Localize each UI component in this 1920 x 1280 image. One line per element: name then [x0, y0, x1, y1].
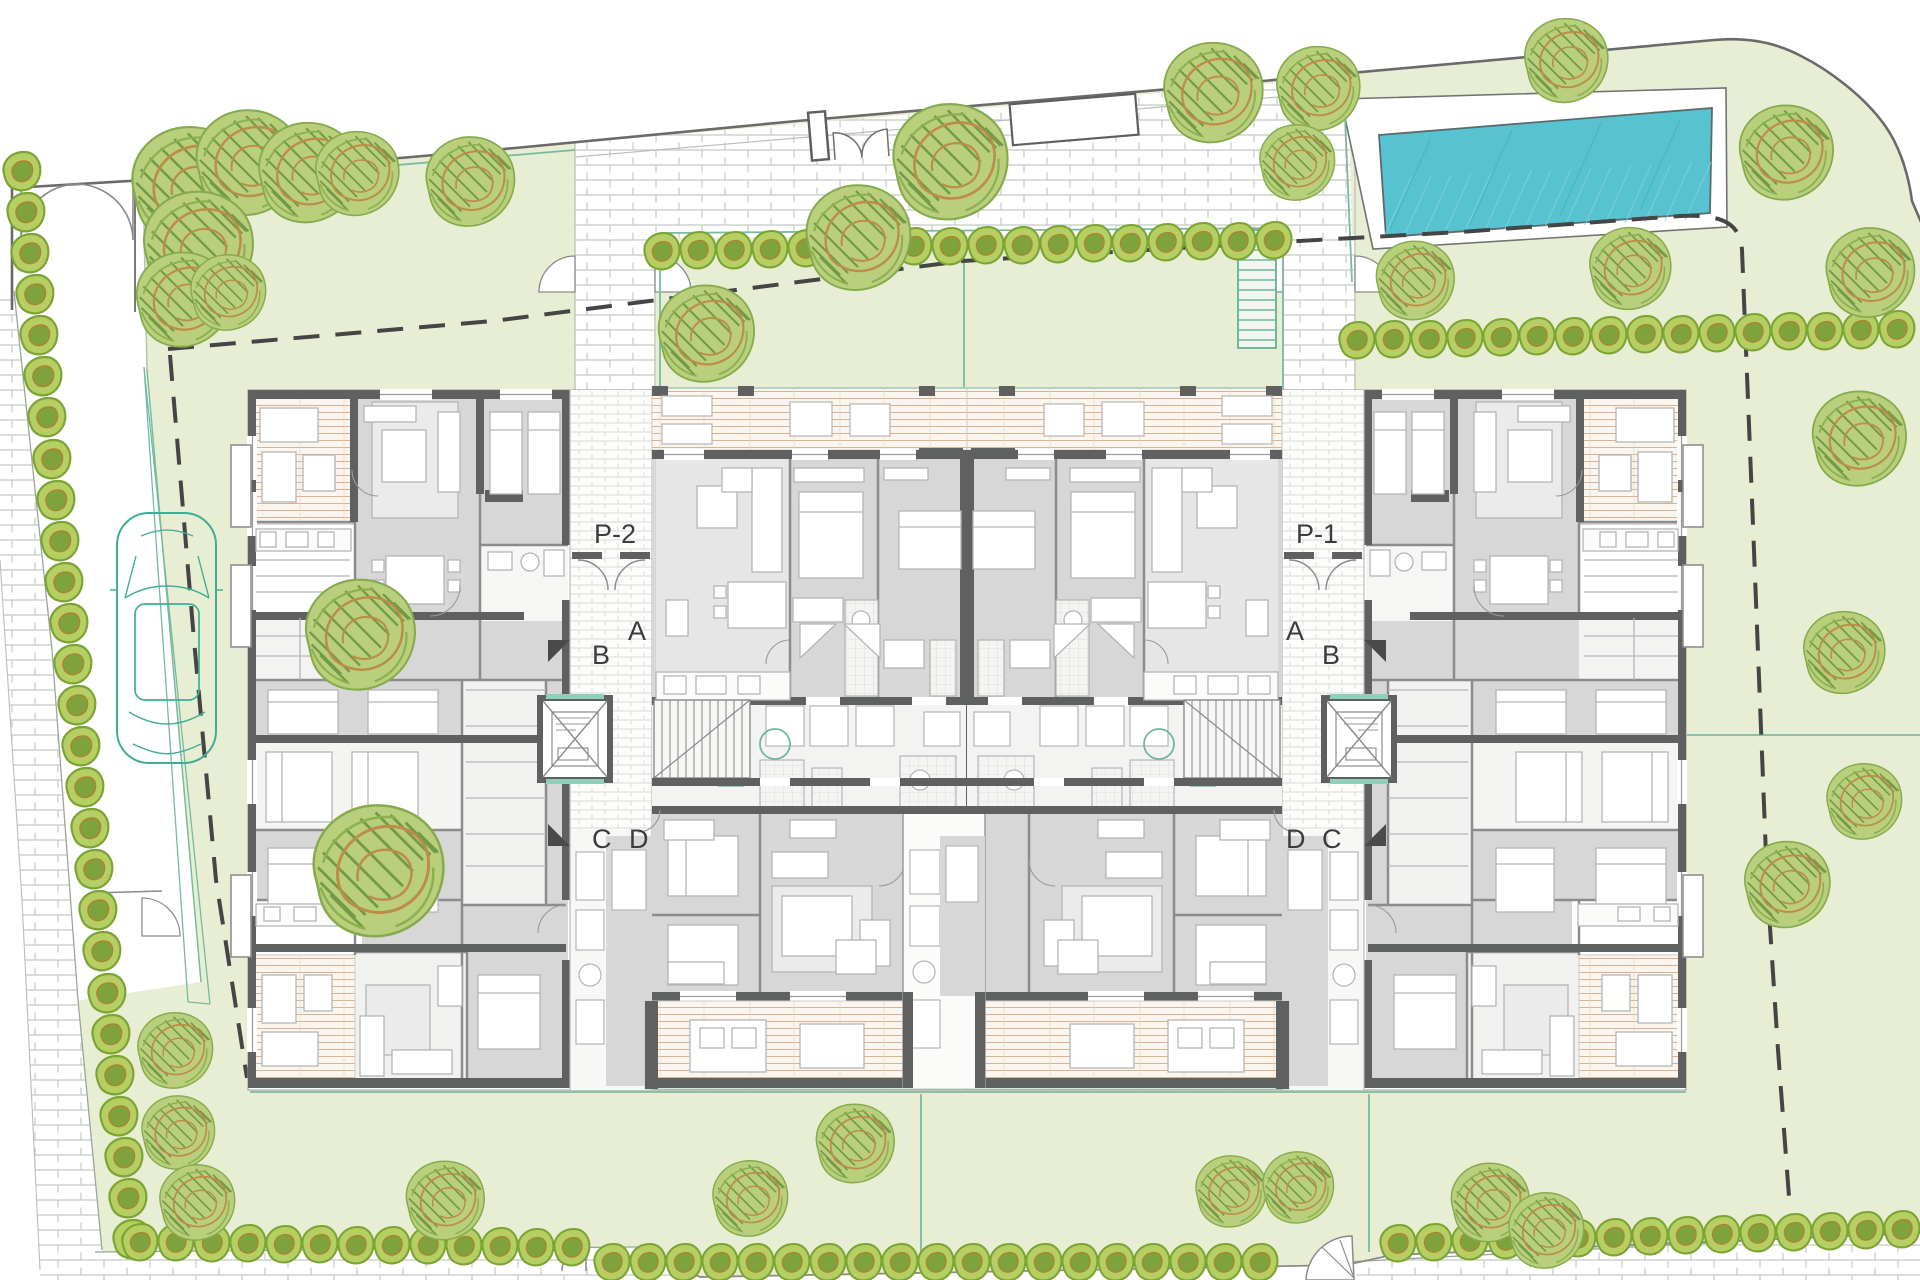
svg-text:A: A: [1286, 616, 1304, 646]
svg-text:C: C: [592, 824, 612, 854]
svg-text:B: B: [1322, 640, 1340, 670]
svg-text:B: B: [592, 640, 610, 670]
svg-text:C: C: [1322, 824, 1342, 854]
svg-text:P-2: P-2: [594, 519, 636, 549]
svg-text:P-1: P-1: [1296, 519, 1338, 549]
svg-text:D: D: [629, 824, 649, 854]
svg-text:D: D: [1286, 824, 1306, 854]
svg-text:A: A: [628, 616, 646, 646]
